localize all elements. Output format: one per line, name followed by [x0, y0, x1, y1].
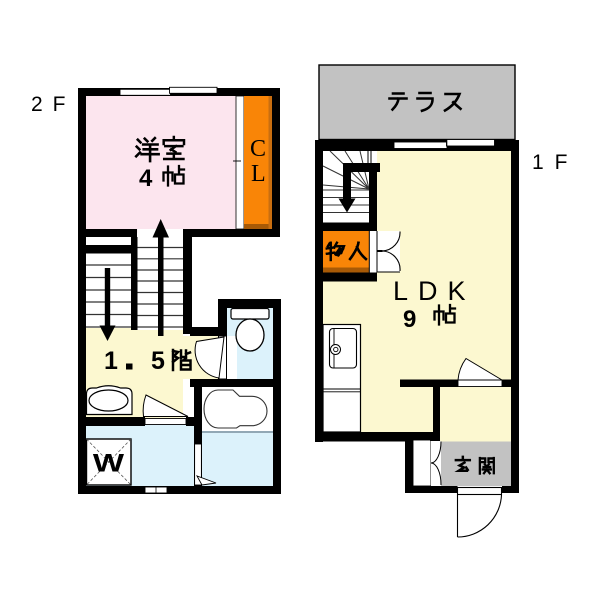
- svg-text:5: 5: [151, 347, 165, 375]
- svg-text:1F: 1F: [532, 151, 579, 174]
- svg-text:L: L: [251, 161, 266, 187]
- svg-text:9: 9: [403, 306, 416, 333]
- svg-text:C: C: [250, 136, 266, 162]
- svg-text:1: 1: [104, 347, 118, 375]
- svg-text:W: W: [93, 450, 125, 477]
- svg-text:4: 4: [139, 165, 153, 192]
- svg-text:LDK: LDK: [393, 276, 476, 306]
- svg-text:2F: 2F: [31, 93, 76, 116]
